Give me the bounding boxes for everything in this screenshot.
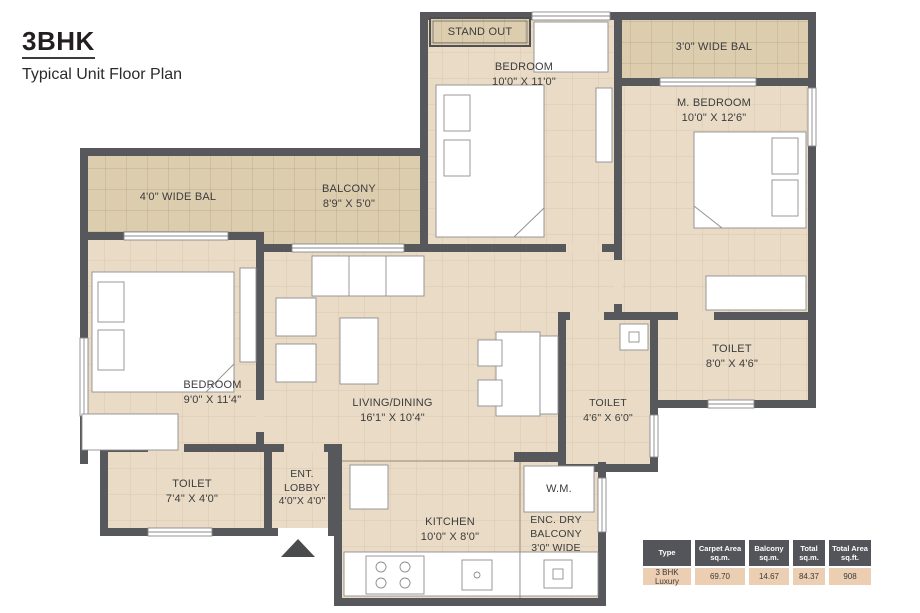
floor-plan-drawing [0, 0, 920, 613]
bed-top [436, 85, 544, 237]
living-floor-ext [566, 252, 614, 312]
washing-machine-box [524, 466, 594, 512]
area-table: Type Carpet Area sq.m. Balcony sq.m. Tot… [643, 540, 871, 585]
fridge [350, 465, 388, 509]
wardrobe-top-window [534, 22, 608, 72]
dining-bench [540, 336, 558, 414]
table-header-total-area: Total Area sq.ft. [829, 540, 871, 566]
entry-arrow-icon [281, 539, 315, 557]
bed-master [694, 132, 806, 228]
table-cell-total-area: 908 [829, 568, 871, 585]
toilet-left-floor [108, 452, 264, 528]
armchair-2 [276, 344, 316, 382]
wardrobe-left [240, 268, 256, 362]
wardrobe-top-right [596, 88, 612, 162]
table-cell-type: 3 BHK Luxury [643, 568, 691, 585]
sink [462, 560, 492, 590]
lobby-floor [272, 452, 328, 528]
dining-chair-1 [478, 340, 502, 366]
wardrobe-master [706, 276, 806, 310]
washbasin [620, 324, 648, 350]
dining-chair-2 [478, 380, 502, 406]
table-header-balcony: Balcony sq.m. [749, 540, 789, 566]
table-cell-total: 84.37 [793, 568, 825, 585]
table-header-carpet-area: Carpet Area sq.m. [695, 540, 745, 566]
table-header-total: Total sq.m. [793, 540, 825, 566]
coffee-table [340, 318, 378, 384]
stove [366, 556, 424, 594]
area-table-data-row: 3 BHK Luxury 69.70 14.67 84.37 908 [643, 568, 871, 585]
table-header-type: Type [643, 540, 691, 566]
stand-out-box [430, 18, 530, 46]
floor-plan-page: { "title": { "heading": "3BHK", "subhead… [0, 0, 920, 613]
utility-sink [544, 560, 572, 588]
table-cell-carpet-area: 69.70 [695, 568, 745, 585]
niche-left [82, 414, 178, 450]
toilet-right-floor [658, 320, 808, 400]
sofa [312, 256, 424, 296]
area-table-header-row: Type Carpet Area sq.m. Balcony sq.m. Tot… [643, 540, 871, 566]
bed-left [92, 272, 234, 392]
dining-table [496, 332, 540, 416]
armchair-1 [276, 298, 316, 336]
table-cell-balcony: 14.67 [749, 568, 789, 585]
